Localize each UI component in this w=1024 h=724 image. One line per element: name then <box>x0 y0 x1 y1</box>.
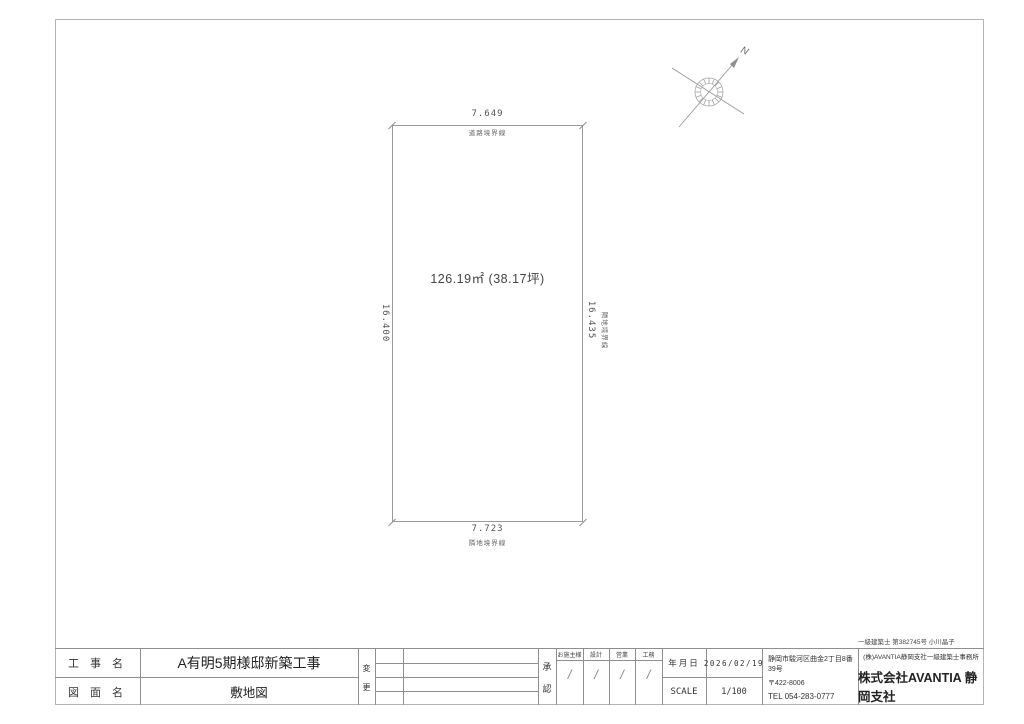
approval-mark: / <box>609 660 635 688</box>
revision-label-bottom: 更 <box>363 682 371 693</box>
project-name-value: A有明5期様邸新築工事 <box>140 649 358 677</box>
titleblock-divider <box>375 691 538 692</box>
title-block: 工 事 名 A有明5期様邸新築工事 図 面 名 敷地図 変 更 承 認 お施主様… <box>55 648 984 705</box>
office-contact: 静岡市駿河区曲金2丁目8番39号 〒422-8006 TEL 054-283-0… <box>762 649 858 706</box>
approval-col-sales: 営業 <box>609 649 635 660</box>
office-address: 静岡市駿河区曲金2丁目8番39号 <box>768 654 858 674</box>
approval-label-bottom: 認 <box>542 682 551 695</box>
drawing-sheet: N 7.649 道路境界線 7.723 隣地境界線 16.400 16.435 … <box>0 0 1024 724</box>
revision-label: 変 更 <box>358 649 375 706</box>
date-label: 年月日 <box>662 649 706 677</box>
boundary-label-right: 隣地境界線 <box>600 300 611 362</box>
revision-label-top: 変 <box>363 663 371 674</box>
approval-col-design: 設計 <box>583 649 609 660</box>
office-tel: TEL 054-283-0777 <box>768 692 834 701</box>
approval-col-client: お施主様 <box>556 649 583 660</box>
north-arrow-icon: N <box>650 36 755 136</box>
scale-label: SCALE <box>662 677 706 706</box>
office-postal: 〒422-8006 <box>768 678 805 688</box>
project-name-label: 工 事 名 <box>55 649 140 677</box>
date-value: 2026/02/19 <box>706 649 762 677</box>
approval-mark: / <box>556 660 583 688</box>
dimension-bottom: 7.723 <box>392 524 583 534</box>
dimension-top: 7.649 <box>392 109 583 119</box>
approval-label: 承 認 <box>538 649 556 706</box>
company-cell: (株)AVANTIA静岡支社一級建築士事務所 株式会社AVANTIA 静岡支社 <box>858 649 984 706</box>
approval-mark: / <box>583 660 609 688</box>
approval-col-works: 工務 <box>635 649 662 660</box>
titleblock-divider <box>375 677 538 678</box>
drawing-name-label: 図 面 名 <box>55 677 140 706</box>
approval-mark: / <box>635 660 662 688</box>
approval-label-top: 承 <box>542 660 551 673</box>
titleblock-divider <box>375 663 538 664</box>
drawing-name-value: 敷地図 <box>140 677 358 706</box>
site-area-text: 126.19㎡ (38.17坪) <box>377 268 598 287</box>
north-label: N <box>739 45 751 58</box>
boundary-label-top: 道路境界線 <box>392 127 583 137</box>
boundary-label-bottom: 隣地境界線 <box>392 537 583 547</box>
dimension-right: 16.435 <box>584 290 596 350</box>
site-boundary-rectangle <box>392 125 583 522</box>
architect-license-text: 一級建築士 第382745号 小川晶子 <box>858 636 983 646</box>
company-name: 株式会社AVANTIA 静岡支社 <box>858 667 984 705</box>
dimension-left: 16.400 <box>378 293 390 353</box>
company-office-line: (株)AVANTIA静岡支社一級建築士事務所 <box>863 651 979 661</box>
scale-value: 1/100 <box>706 677 762 706</box>
